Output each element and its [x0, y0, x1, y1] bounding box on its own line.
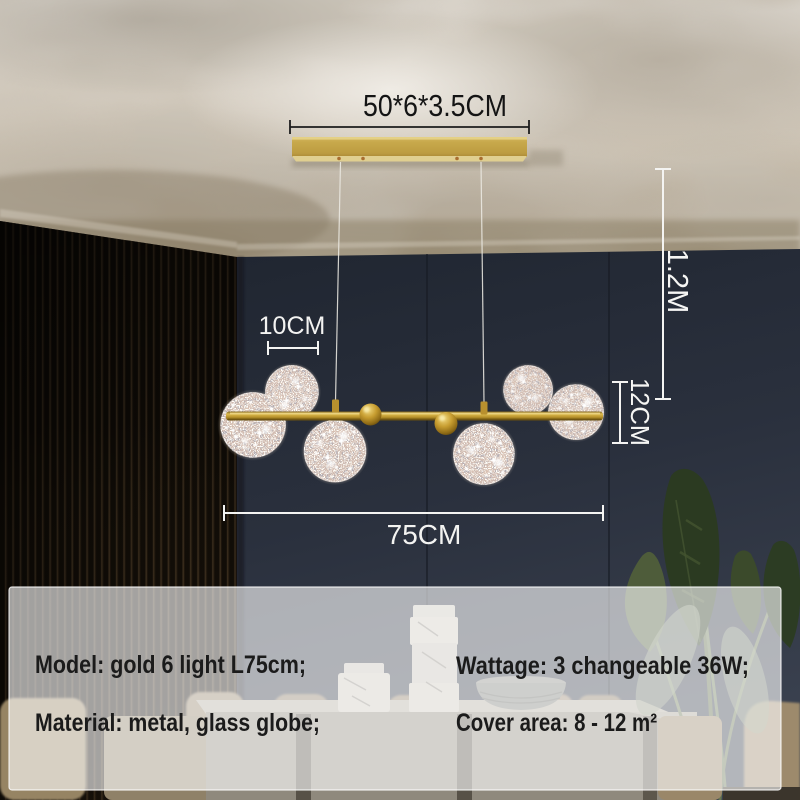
svg-text:Wattage: 3 changeable 36W;: Wattage: 3 changeable 36W; [456, 652, 749, 680]
svg-text:75CM: 75CM [387, 519, 462, 550]
svg-text:12CM: 12CM [625, 378, 653, 446]
svg-text:Cover area: 8 - 12 m²: Cover area: 8 - 12 m² [456, 709, 657, 737]
svg-text:1.2M: 1.2M [661, 249, 693, 313]
svg-text:Material: metal, glass globe;: Material: metal, glass globe; [35, 709, 320, 737]
svg-text:50*6*3.5CM: 50*6*3.5CM [363, 88, 507, 123]
svg-text:Model: gold 6 light L75cm;: Model: gold 6 light L75cm; [35, 651, 306, 679]
svg-text:10CM: 10CM [259, 312, 326, 340]
